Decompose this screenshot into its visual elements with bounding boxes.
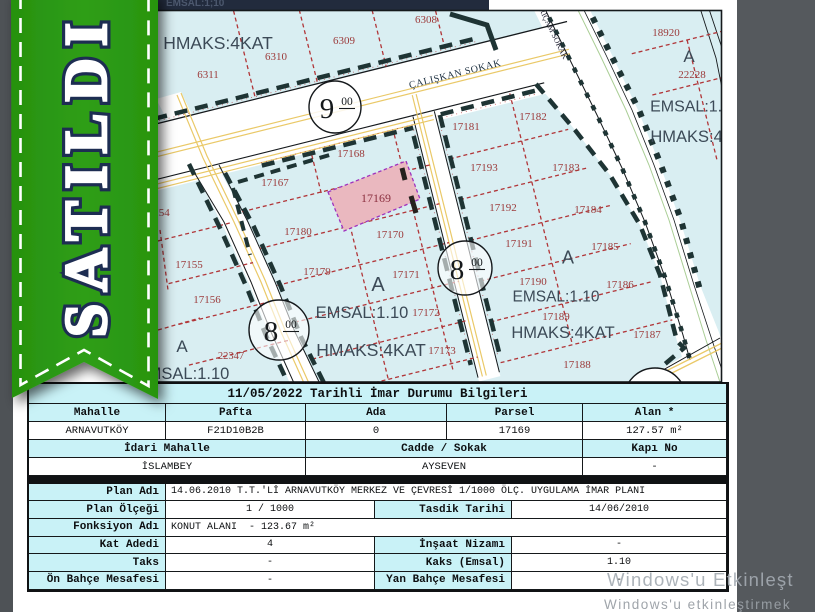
svg-text:17173: 17173 <box>428 345 456 357</box>
svg-text:17185: 17185 <box>591 241 619 253</box>
svg-text:18920: 18920 <box>652 27 680 39</box>
svg-text:HMAKS:4KAT: HMAKS:4KAT <box>650 128 753 146</box>
svg-text:17179: 17179 <box>303 266 331 278</box>
svg-text:00: 00 <box>285 319 297 331</box>
svg-text:6311: 6311 <box>197 69 219 81</box>
svg-text:17172: 17172 <box>412 307 440 319</box>
svg-text:17184: 17184 <box>574 204 602 216</box>
svg-text:17183: 17183 <box>552 162 580 174</box>
svg-text:17171: 17171 <box>392 269 420 281</box>
svg-text:17169: 17169 <box>361 191 391 205</box>
svg-text:6308: 6308 <box>415 14 438 26</box>
svg-text:HMAKS:4KAT: HMAKS:4KAT <box>316 340 426 360</box>
svg-text:17180: 17180 <box>284 226 312 238</box>
svg-text:8: 8 <box>264 316 279 348</box>
svg-text:17181: 17181 <box>452 121 480 133</box>
svg-text:17192: 17192 <box>489 202 517 214</box>
svg-text:A: A <box>683 47 695 66</box>
svg-text:6309: 6309 <box>333 35 356 47</box>
svg-text:17188: 17188 <box>563 359 591 371</box>
svg-text:17167: 17167 <box>261 177 289 189</box>
svg-text:17193: 17193 <box>470 162 498 174</box>
svg-text:HMAKS:4KAT: HMAKS:4KAT <box>511 324 614 342</box>
svg-text:17191: 17191 <box>505 238 533 250</box>
svg-text:9: 9 <box>320 93 335 125</box>
svg-text:17189: 17189 <box>542 311 570 323</box>
svg-text:17182: 17182 <box>519 111 547 123</box>
svg-text:EMSAL:1.10: EMSAL:1.10 <box>316 304 409 322</box>
svg-text:17190: 17190 <box>519 276 547 288</box>
svg-text:17170: 17170 <box>376 229 404 241</box>
svg-text:00: 00 <box>471 257 483 269</box>
svg-text:8: 8 <box>450 254 465 286</box>
svg-text:17187: 17187 <box>633 329 661 341</box>
svg-text:17186: 17186 <box>606 279 634 291</box>
svg-text:A: A <box>562 247 574 267</box>
svg-text:22347: 22347 <box>218 351 244 362</box>
svg-text:EMSAL:1.10: EMSAL:1.10 <box>650 99 740 116</box>
svg-text:17168: 17168 <box>337 148 365 160</box>
svg-text:SATILDI: SATILDI <box>53 11 119 337</box>
svg-text:EMSAL:1.10: EMSAL:1.10 <box>512 288 599 305</box>
svg-text:22228: 22228 <box>678 69 706 81</box>
svg-text:A: A <box>371 274 385 296</box>
svg-text:00: 00 <box>341 96 353 108</box>
